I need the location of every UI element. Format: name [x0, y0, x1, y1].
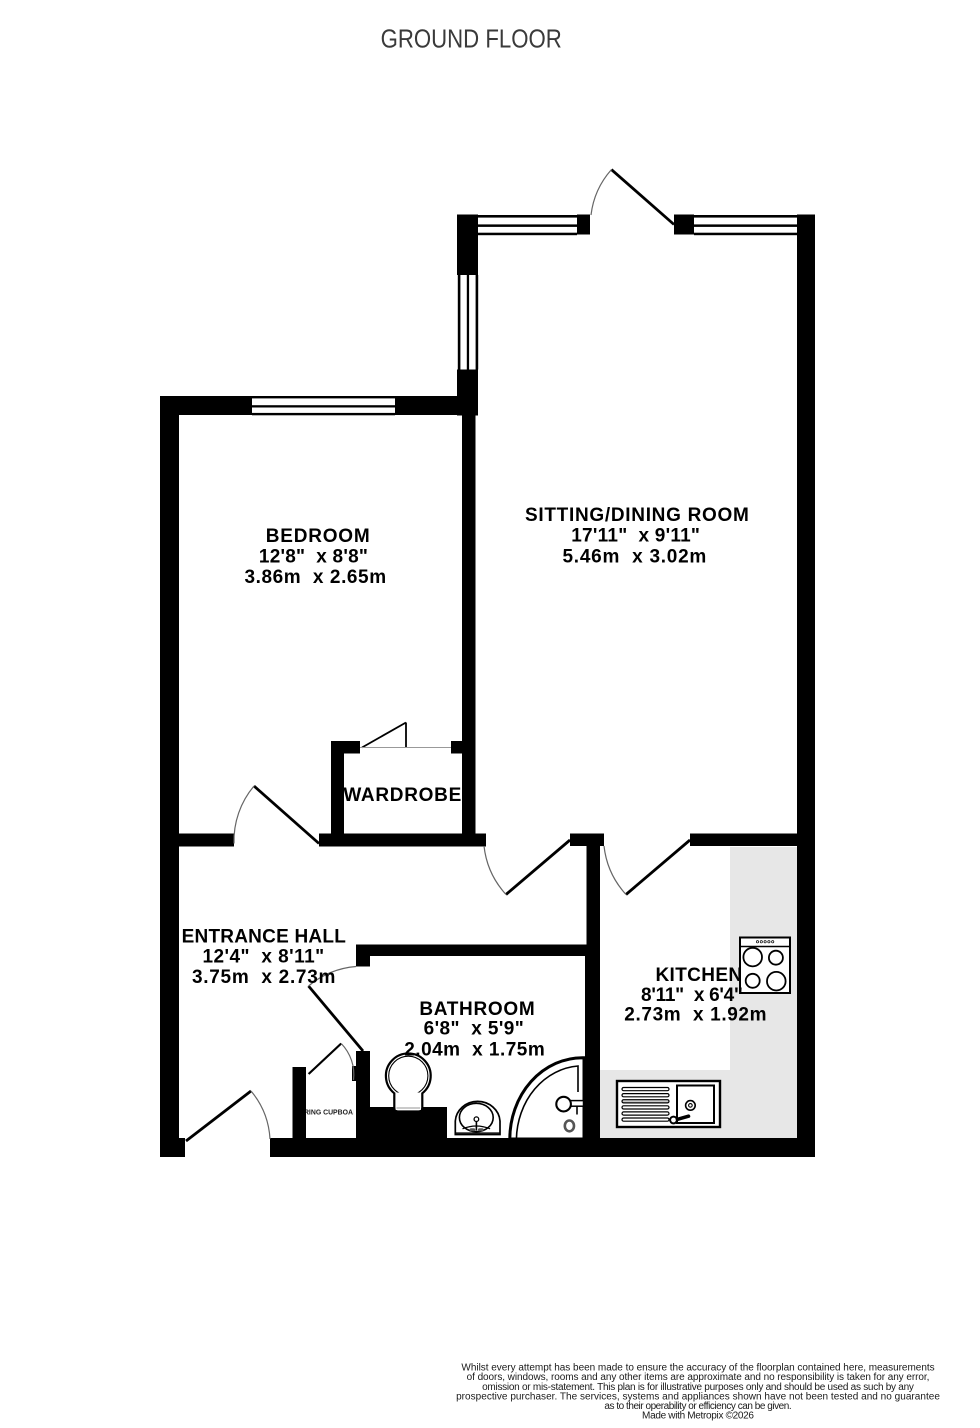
- svg-text:3.86m x 2.65m: 3.86m x 2.65m: [245, 567, 387, 588]
- svg-text:SITTING/DINING ROOM: SITTING/DINING ROOM: [525, 505, 749, 526]
- svg-text:GROUND FLOOR: GROUND FLOOR: [381, 26, 562, 54]
- svg-text:KITCHEN: KITCHEN: [655, 965, 742, 986]
- svg-text:5.46m x 3.02m: 5.46m x 3.02m: [563, 546, 707, 567]
- svg-text:2.04m x 1.75m: 2.04m x 1.75m: [404, 1040, 545, 1061]
- svg-text:3.75m x 2.73m: 3.75m x 2.73m: [192, 967, 335, 988]
- svg-text:Made with Metropix ©2026: Made with Metropix ©2026: [642, 1411, 754, 1422]
- svg-text:2.73m x 1.92m: 2.73m x 1.92m: [624, 1005, 766, 1026]
- svg-text:WARDROBE: WARDROBE: [343, 785, 461, 806]
- svg-text:8'11" x 6'4": 8'11" x 6'4": [641, 985, 743, 1006]
- svg-text:12'4" x 8'11": 12'4" x 8'11": [202, 947, 324, 968]
- svg-text:ENTRANCE HALL: ENTRANCE HALL: [182, 927, 347, 948]
- svg-text:BATHROOM: BATHROOM: [419, 999, 534, 1020]
- svg-text:12'8" x 8'8": 12'8" x 8'8": [259, 547, 368, 568]
- svg-text:BEDROOM: BEDROOM: [266, 526, 370, 547]
- svg-text:17'11" x 9'11": 17'11" x 9'11": [571, 525, 700, 546]
- svg-text:AIRING CUPBOARD: AIRING CUPBOARD: [297, 1110, 363, 1117]
- svg-text:6'8" x 5'9": 6'8" x 5'9": [424, 1019, 524, 1040]
